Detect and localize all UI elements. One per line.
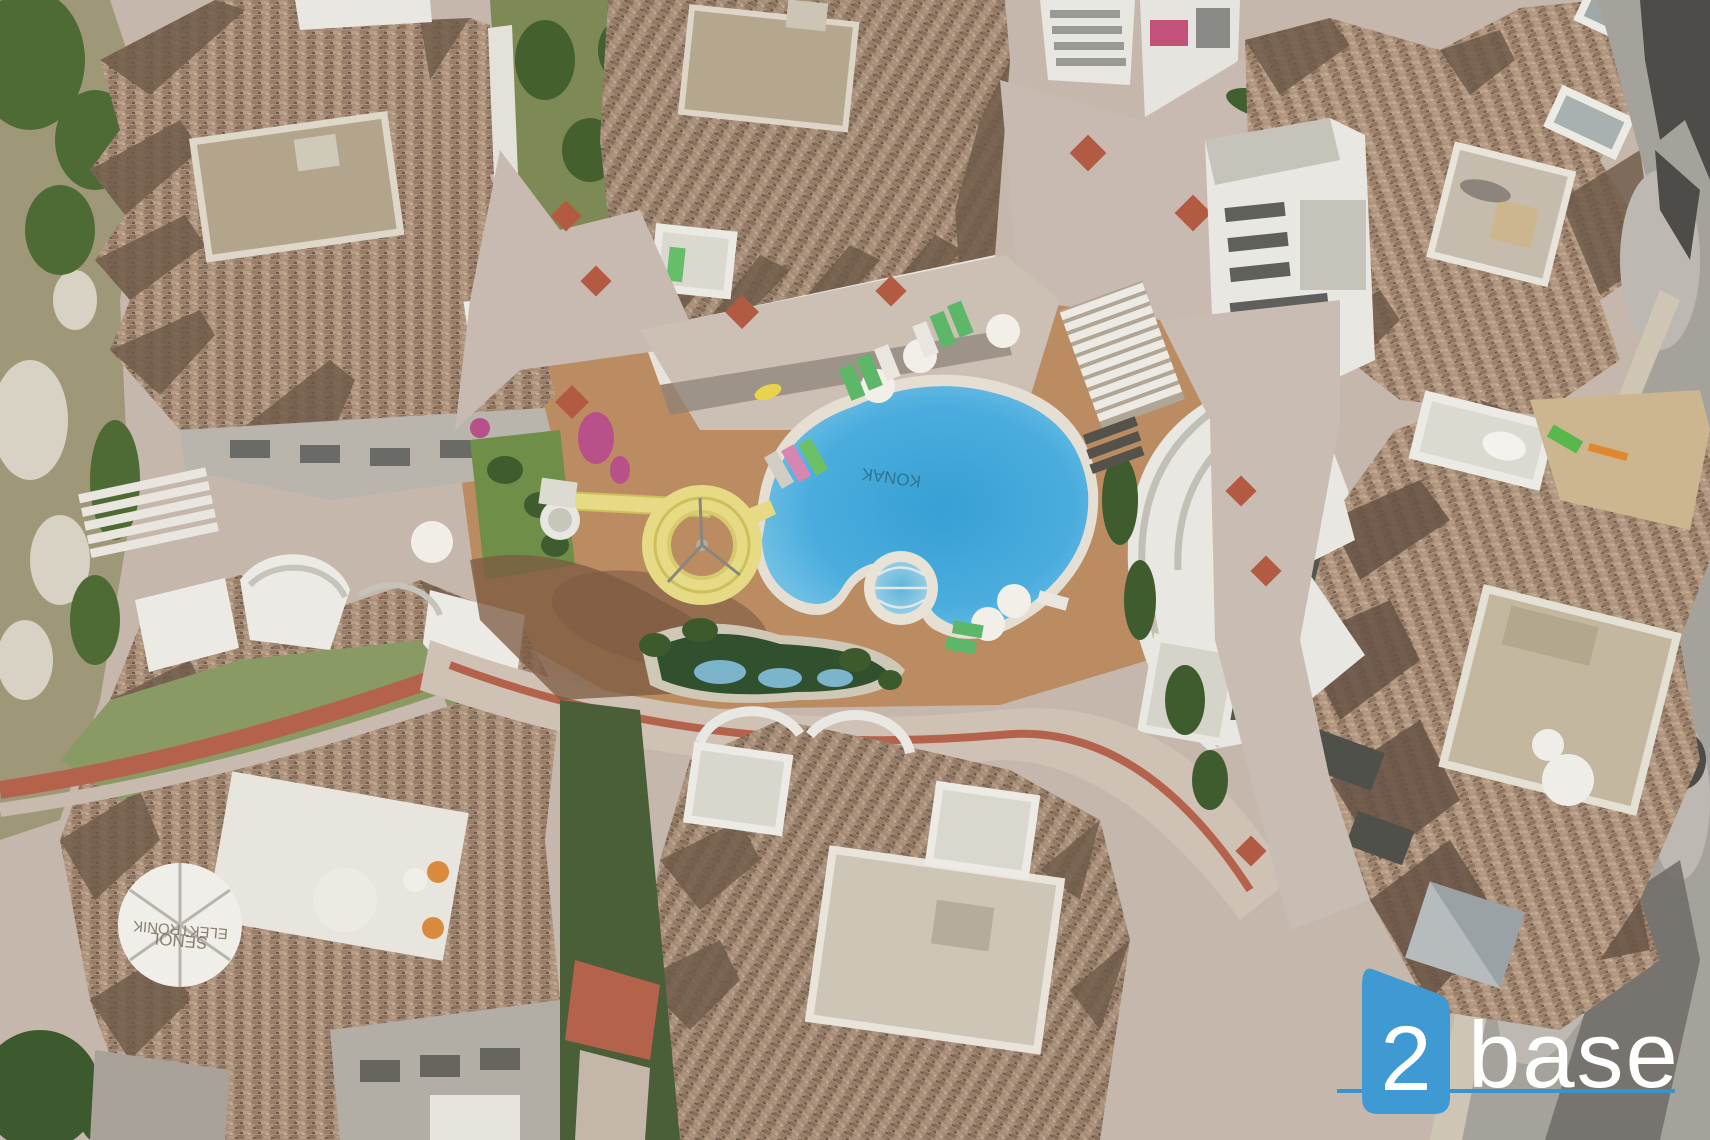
svg-text:2: 2 bbox=[1380, 1008, 1431, 1110]
svg-text:base: base bbox=[1468, 1002, 1680, 1107]
